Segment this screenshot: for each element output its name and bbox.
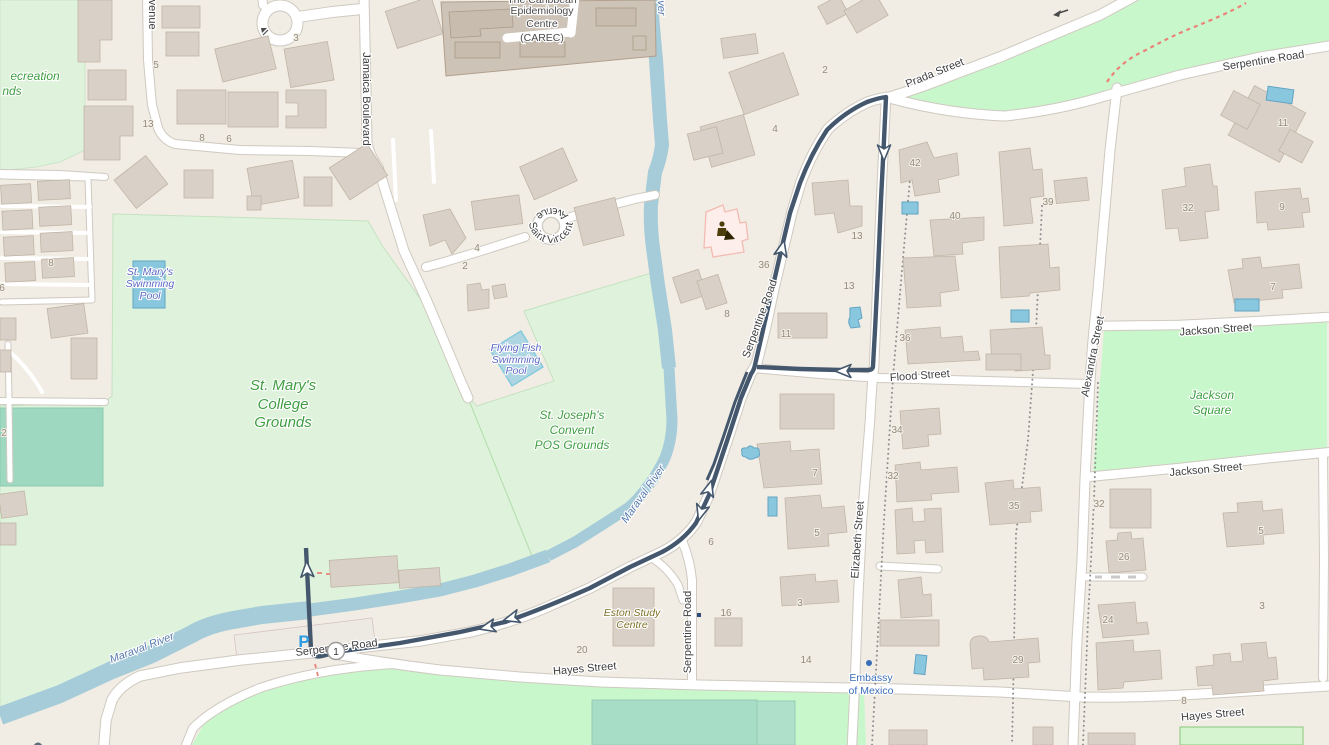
svg-text:4: 4 — [474, 243, 480, 254]
svg-text:32: 32 — [1093, 499, 1105, 510]
svg-text:32: 32 — [1182, 203, 1194, 214]
svg-text:JacksonSquare: JacksonSquare — [1189, 388, 1234, 417]
svg-text:1: 1 — [333, 647, 339, 658]
svg-text:5: 5 — [814, 528, 820, 539]
svg-text:11: 11 — [781, 329, 792, 340]
svg-text:34: 34 — [891, 425, 903, 436]
svg-text:3: 3 — [1259, 601, 1265, 612]
svg-text:9: 9 — [1279, 202, 1285, 213]
svg-text:13: 13 — [851, 231, 863, 242]
svg-text:Jamaica Boulevard: Jamaica Boulevard — [360, 52, 372, 146]
svg-text:4: 4 — [772, 124, 778, 135]
svg-text:36: 36 — [899, 333, 911, 344]
svg-text:32: 32 — [887, 471, 899, 482]
svg-text:42: 42 — [909, 158, 921, 169]
svg-text:40: 40 — [949, 211, 961, 222]
svg-text:8: 8 — [1181, 696, 1187, 707]
svg-text:35: 35 — [1008, 501, 1020, 512]
svg-text:11: 11 — [1278, 118, 1289, 129]
svg-text:13: 13 — [843, 281, 855, 292]
svg-text:8: 8 — [199, 133, 205, 144]
svg-text:20: 20 — [576, 645, 588, 656]
svg-text:3: 3 — [797, 598, 803, 609]
svg-text:2: 2 — [462, 261, 468, 272]
svg-text:ver: ver — [655, 0, 668, 17]
svg-text:29: 29 — [1012, 655, 1024, 666]
svg-text:5: 5 — [1258, 526, 1264, 537]
svg-text:Embassyof Mexico: Embassyof Mexico — [849, 672, 894, 697]
svg-text:24: 24 — [1102, 615, 1114, 626]
svg-text:Avenue: Avenue — [146, 0, 158, 30]
svg-text:26: 26 — [1118, 552, 1130, 563]
svg-text:13: 13 — [142, 119, 154, 130]
svg-text:16: 16 — [720, 608, 732, 619]
svg-text:14: 14 — [800, 655, 812, 666]
svg-text:5: 5 — [153, 60, 159, 71]
svg-text:2: 2 — [822, 65, 828, 76]
svg-text:8: 8 — [48, 258, 54, 269]
svg-text:6: 6 — [226, 134, 232, 145]
svg-text:2: 2 — [1, 428, 7, 439]
svg-text:36: 36 — [758, 260, 770, 271]
svg-text:6: 6 — [0, 283, 5, 294]
svg-text:3: 3 — [293, 33, 299, 44]
svg-text:39: 39 — [1042, 197, 1054, 208]
svg-text:8: 8 — [724, 309, 730, 320]
svg-text:P: P — [298, 632, 309, 651]
svg-text:7: 7 — [812, 468, 818, 479]
svg-text:6: 6 — [708, 537, 714, 548]
svg-text:Serpentine Road: Serpentine Road — [682, 591, 694, 674]
svg-text:St. Mary'sCollegeGrounds: St. Mary'sCollegeGrounds — [250, 377, 317, 431]
svg-text:7: 7 — [1270, 282, 1276, 293]
